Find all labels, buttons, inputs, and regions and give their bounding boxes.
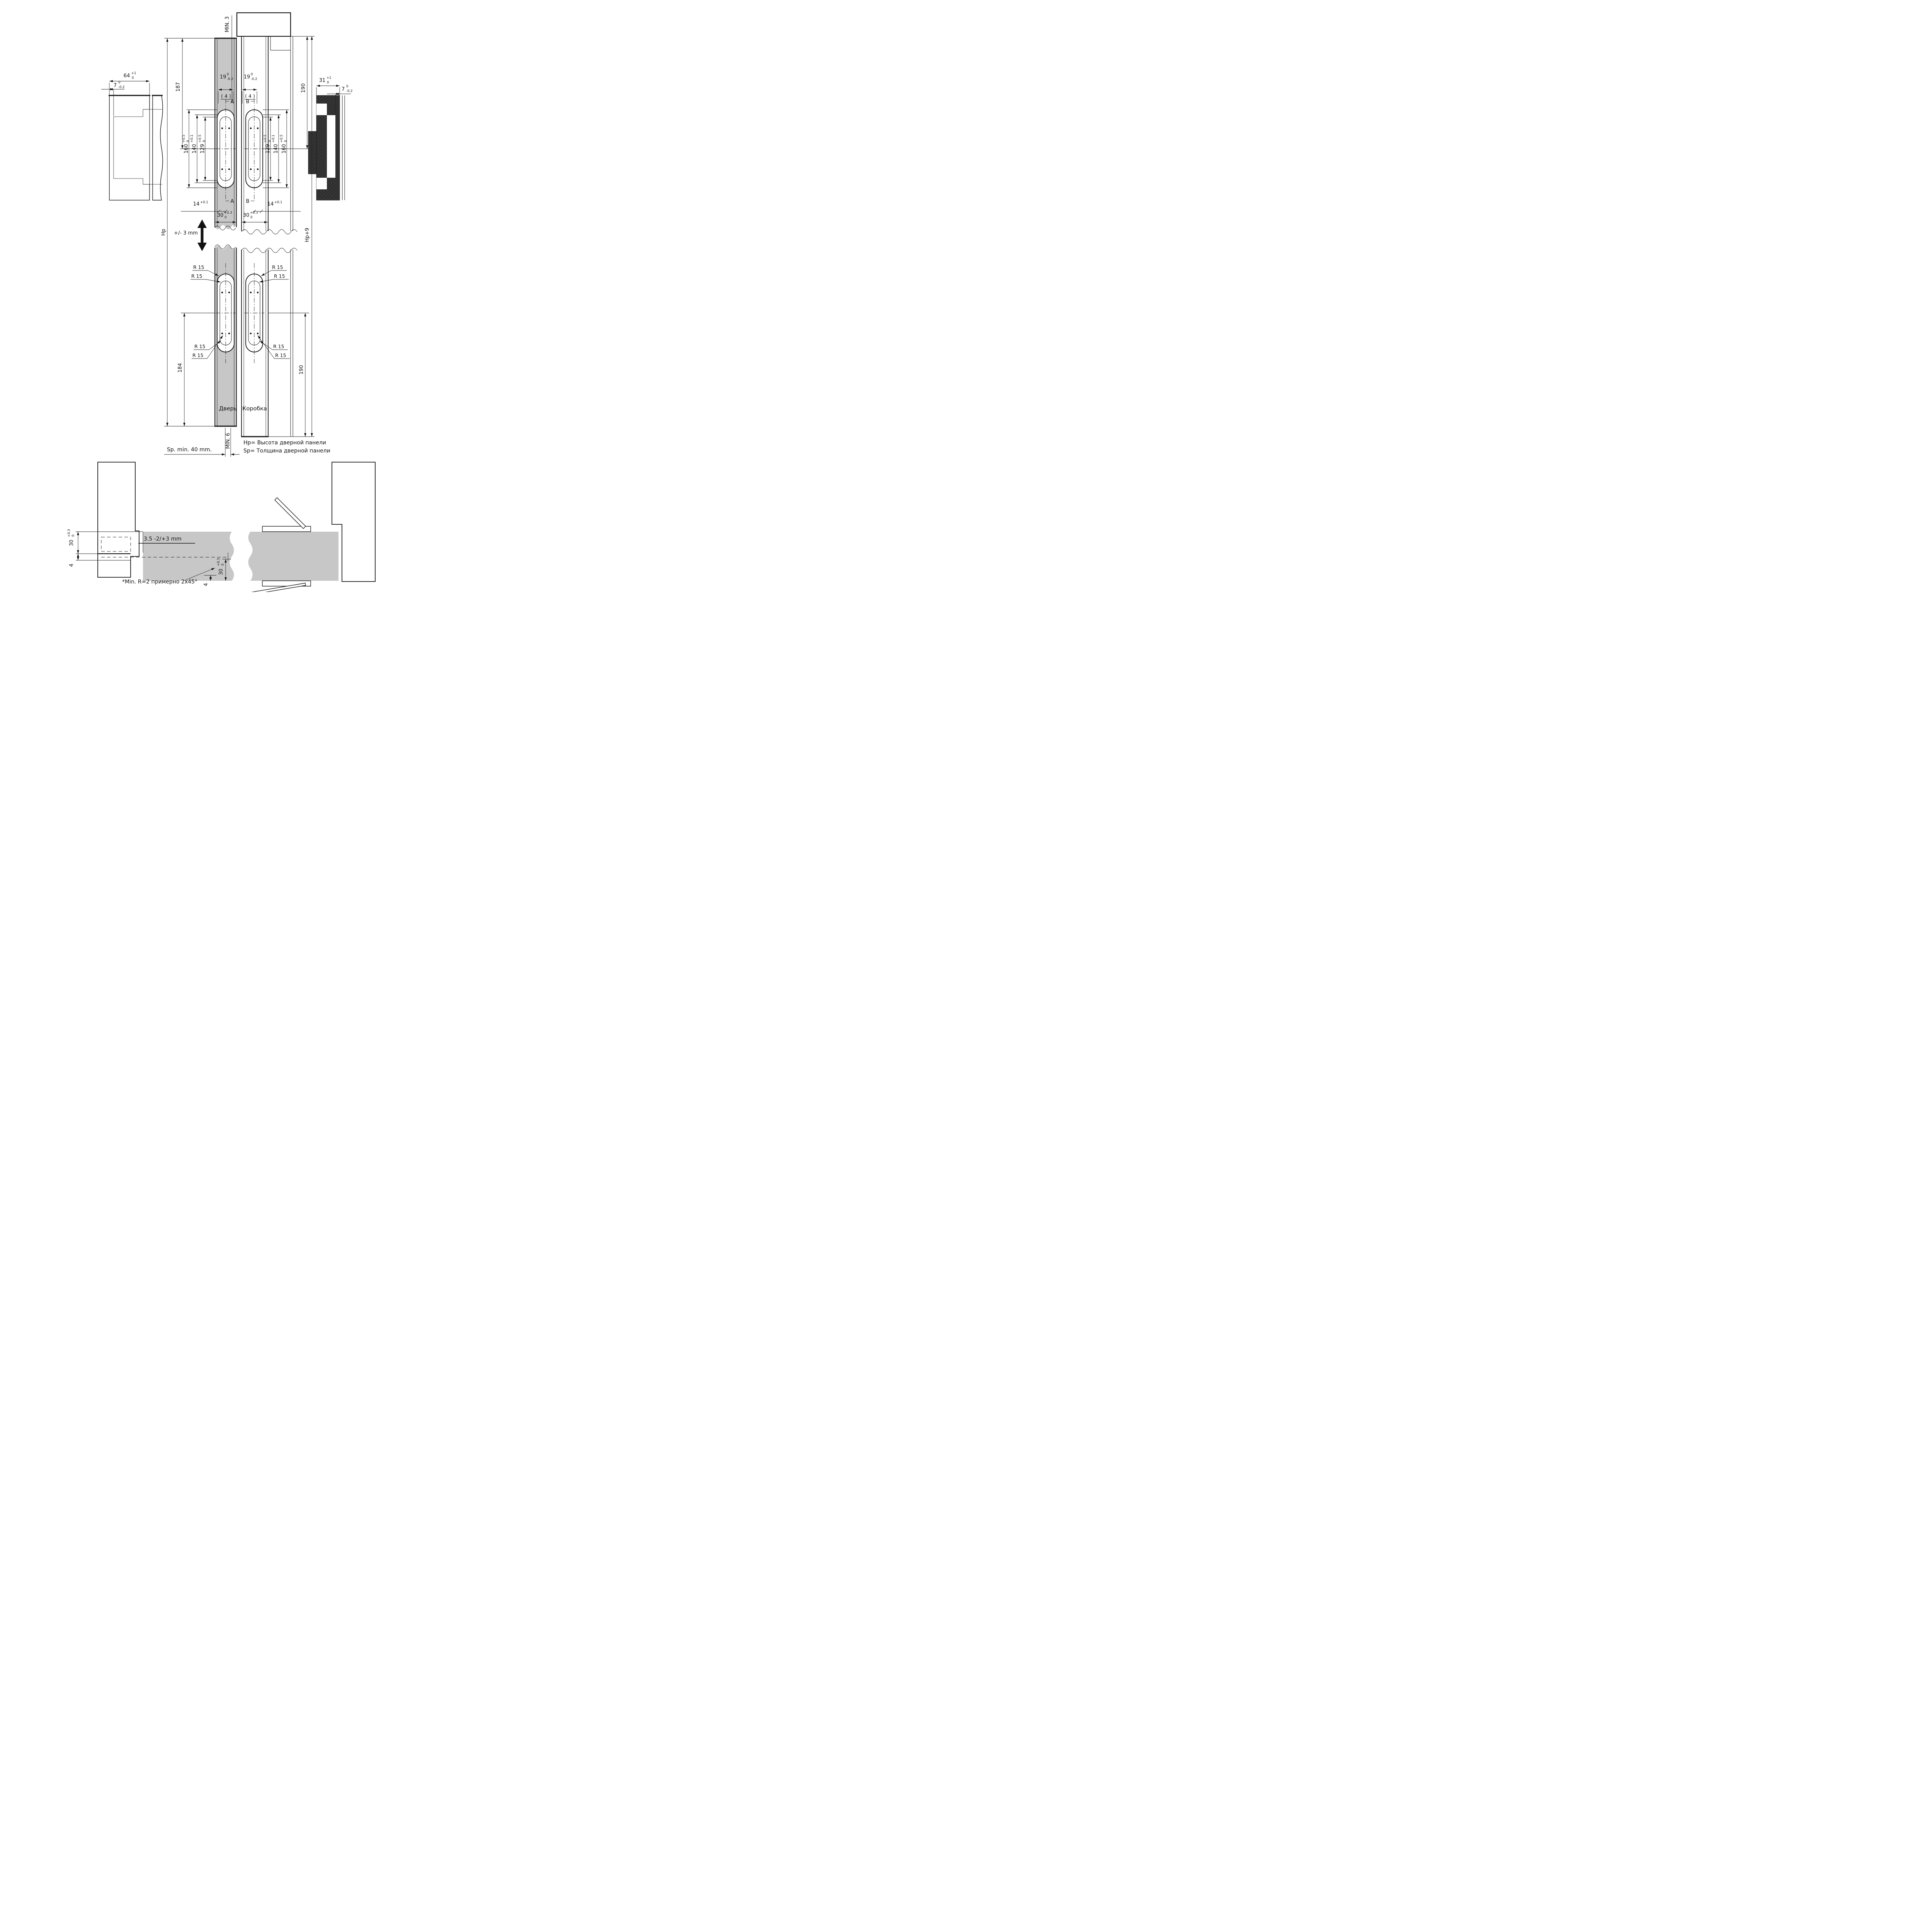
note-hp: Hp= Высота дверной панели (243, 440, 326, 446)
door-edge-section (109, 95, 163, 200)
dim-min3-label: MIN. 3 (224, 16, 230, 32)
dim-19-frame-label: 19 (244, 74, 250, 80)
hinge-flap-top (275, 498, 306, 529)
dim-31-sup: +1 (327, 76, 332, 80)
dim-4-plan-left-label: 4 (69, 564, 75, 567)
dim-30-plan-left-label: 30 (69, 540, 75, 546)
dim-14-left-label: 14 (193, 201, 200, 207)
dim-14-right-label: 14 (267, 201, 274, 207)
hinge-cutouts (216, 99, 264, 363)
dim-min6-label: MIN. 6 (225, 433, 231, 449)
dim-140-right-label: 140 (273, 144, 279, 154)
dim-184-label: 184 (177, 363, 183, 373)
dim-129-left-sup: +0.5 (198, 134, 202, 143)
section-b-top: B (246, 99, 250, 105)
dim-30-frame: 30 +0.3 0 (242, 211, 268, 222)
dim-19-door-sub: -0.2 (227, 77, 233, 81)
dim-31-sub: 0 (327, 81, 329, 85)
dim-187-label: 187 (175, 82, 181, 92)
r15-label: R 15 (274, 273, 285, 279)
dim-160-right-label: 160 (281, 144, 287, 154)
dim-14-right-sup: +0.1 (274, 201, 282, 204)
dim-160-left-sup: +0.5 (182, 134, 186, 143)
frame-rail-label: Коробка (242, 406, 267, 412)
adjust-arrow: +/- 3 mm (174, 219, 207, 251)
dim-190-top-label: 190 (301, 83, 306, 93)
adjust-range-label: +/- 3 mm (174, 230, 198, 236)
qty4-door-label: ( 4 ) (221, 93, 231, 99)
dim-7-left-sub: -0.2 (118, 85, 125, 89)
door-rail-label: Дверь (219, 406, 237, 412)
dim-gap-label: 3.5 -2/+3 mm (144, 536, 182, 542)
dim-160-right-sub: 0 (284, 140, 288, 142)
dim-129-right-sup: +0.5 (264, 134, 267, 143)
dim-hp-label: Hp (161, 229, 167, 236)
dim-7-left-sup: 0 (118, 81, 120, 85)
section-a-bottom: A (231, 199, 234, 204)
dim-30-plan-center-sub: 0 (221, 564, 225, 566)
section-b-bottom: B (246, 199, 250, 204)
dim-30-frame-label: 30 (243, 213, 250, 218)
dim-31-label: 31 (319, 78, 326, 83)
chamfer-note-label: *Min. R=2 примерно 2x45° (122, 579, 197, 585)
dim-4-plan-center-label: 4 (203, 583, 209, 586)
dim-hp9-label: Hp+9 (304, 228, 310, 242)
dim-7-right-label: 7 (342, 87, 345, 92)
dim-160-left-sub: 0 (186, 140, 190, 142)
note-sp: Sp= Толщина дверной панели (243, 448, 330, 454)
dim-7-left-label: 7 (114, 83, 117, 88)
dim-30-frame-sup: +0.3 (250, 211, 258, 215)
dim-30-door-sup: +0.3 (224, 211, 232, 215)
dim-19-frame: 19 0 -0.2 (242, 73, 257, 104)
r15-label: R 15 (192, 352, 204, 358)
r15-label: R 15 (273, 344, 284, 349)
dim-190-bottom: 190 (268, 313, 309, 437)
dim-30-plan-center-label: 30 (218, 569, 224, 575)
dim-19-frame-sub: -0.2 (251, 77, 257, 81)
dim-64-label: 64 (124, 73, 130, 79)
qty4-frame-label: ( 4 ) (245, 93, 255, 99)
dim-30-plan-center-sup: +0.3 (217, 558, 221, 566)
dim-140-left-label: 140 (192, 144, 197, 154)
dim-64-sup: +1 (131, 71, 136, 75)
dim-30-plan-left: 30 +0.3 0 (67, 529, 143, 554)
dim-31: 31 +1 0 (316, 76, 340, 95)
drawing-sheet: 64 +1 0 7 0 -0.2 31 +1 0 7 0 -0.2 (0, 0, 444, 592)
dim-30-plan-left-sub: 0 (71, 535, 75, 537)
dim-30-door-sub: 0 (224, 216, 226, 219)
r15-label: R 15 (194, 344, 206, 349)
dim-19-door-sup: 0 (227, 73, 229, 77)
dim-129-left-sub: 0 (202, 140, 206, 142)
dim-4-plan-left: 4 (69, 554, 131, 567)
dim-30-plan-left-sup: +0.3 (67, 529, 71, 537)
dim-hp9: Hp+9 (268, 36, 315, 437)
sp-min-note: Sp. min. 40 mm. (167, 447, 212, 453)
r15-label: R 15 (191, 273, 202, 279)
frame-head-block (237, 13, 291, 36)
dim-160-right-sup: +0.5 (280, 134, 284, 143)
dim-187: 187 (164, 38, 217, 149)
dim-140-left-sup: +0.1 (190, 134, 194, 143)
dim-19-frame-sup: 0 (251, 73, 253, 77)
dim-14-right: 14 +0.1 (253, 201, 301, 213)
r15-leaders: R 15 R 15 R 15 R 15 R 15 R 15 R 15 R 15 (190, 264, 290, 359)
dim-14-left-sup: +0.1 (200, 201, 208, 204)
r15-label: R 15 (275, 352, 286, 358)
hidden-hinge-body (101, 537, 131, 551)
r15-label: R 15 (193, 264, 204, 270)
dim-129-right-sub: 0 (268, 140, 272, 142)
dim-7-left: 7 0 -0.2 (101, 81, 125, 116)
dim-30-door-label: 30 (217, 213, 224, 218)
dim-140-right-sup: +0.1 (272, 134, 276, 143)
dim-64-sub: 0 (132, 76, 134, 80)
dim-184: 184 (177, 313, 215, 426)
dim-7-right-sub: -0.2 (346, 89, 353, 93)
dim-190-bottom-label: 190 (299, 365, 304, 375)
frame-edge-section (308, 95, 345, 200)
dim-7-right-sup: 0 (346, 85, 348, 88)
plan-left-jamb (98, 462, 139, 577)
dim-19-door-label: 19 (220, 74, 226, 80)
technical-drawing: 64 +1 0 7 0 -0.2 31 +1 0 7 0 -0.2 (0, 0, 444, 592)
r15-label: R 15 (272, 264, 283, 270)
dim-160-left-label: 160 (184, 144, 189, 154)
dim-129-right-label: 129 (265, 144, 271, 154)
dim-129-left-label: 129 (200, 144, 206, 154)
dim-30-frame-sub: 0 (250, 216, 252, 219)
section-a-top: A (231, 99, 234, 105)
